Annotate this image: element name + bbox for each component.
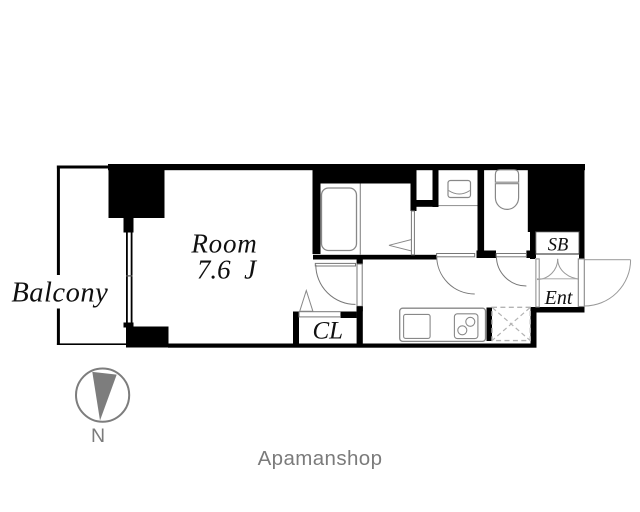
svg-text:7.6 J: 7.6 J — [197, 255, 258, 285]
svg-text:Apamanshop: Apamanshop — [258, 447, 383, 470]
svg-text:N: N — [91, 425, 105, 447]
svg-text:Ent: Ent — [544, 287, 573, 309]
svg-text:Balcony: Balcony — [11, 278, 108, 309]
svg-text:SB: SB — [548, 236, 569, 256]
svg-text:CL: CL — [313, 318, 344, 345]
